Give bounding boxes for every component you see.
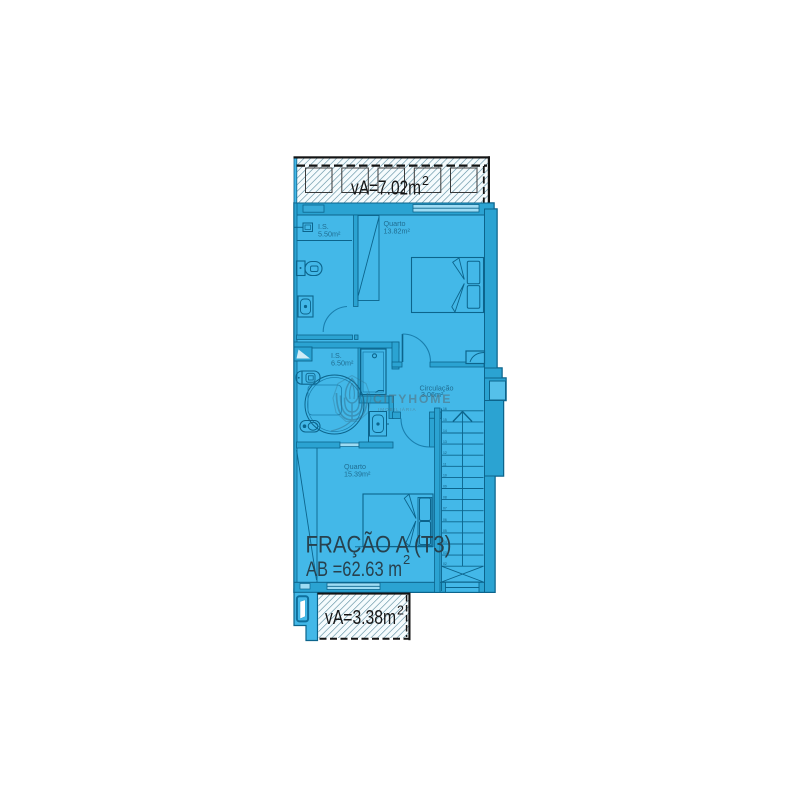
svg-text:13: 13 [443,440,447,444]
svg-text:IMOBILIÁRIA: IMOBILIÁRIA [378,406,417,412]
svg-text:vA=7.02m: vA=7.02m [351,178,421,200]
svg-text:16: 16 [443,407,447,411]
svg-text:11: 11 [443,462,447,466]
svg-text:2: 2 [422,174,429,188]
svg-text:AB =62.63 m: AB =62.63 m [306,557,402,581]
svg-text:6.50m²: 6.50m² [331,359,354,368]
svg-text:2: 2 [403,552,410,567]
svg-text:02: 02 [443,562,447,566]
svg-text:FRAÇÃO A (T3): FRAÇÃO A (T3) [306,532,452,559]
svg-text:vA=3.38m: vA=3.38m [325,607,396,629]
svg-text:15.39m²: 15.39m² [344,470,371,479]
svg-text:CITYHOME: CITYHOME [373,392,452,406]
svg-text:09: 09 [443,485,447,489]
svg-text:08: 08 [443,496,447,500]
svg-text:07: 07 [443,507,447,511]
svg-text:06: 06 [443,518,447,522]
svg-text:5.50m²: 5.50m² [318,230,341,239]
svg-text:13.82m²: 13.82m² [384,227,411,236]
svg-text:12: 12 [443,451,447,455]
svg-text:15: 15 [443,418,447,422]
svg-text:2: 2 [397,604,404,618]
svg-text:10: 10 [443,473,447,477]
svg-text:14: 14 [443,429,447,433]
